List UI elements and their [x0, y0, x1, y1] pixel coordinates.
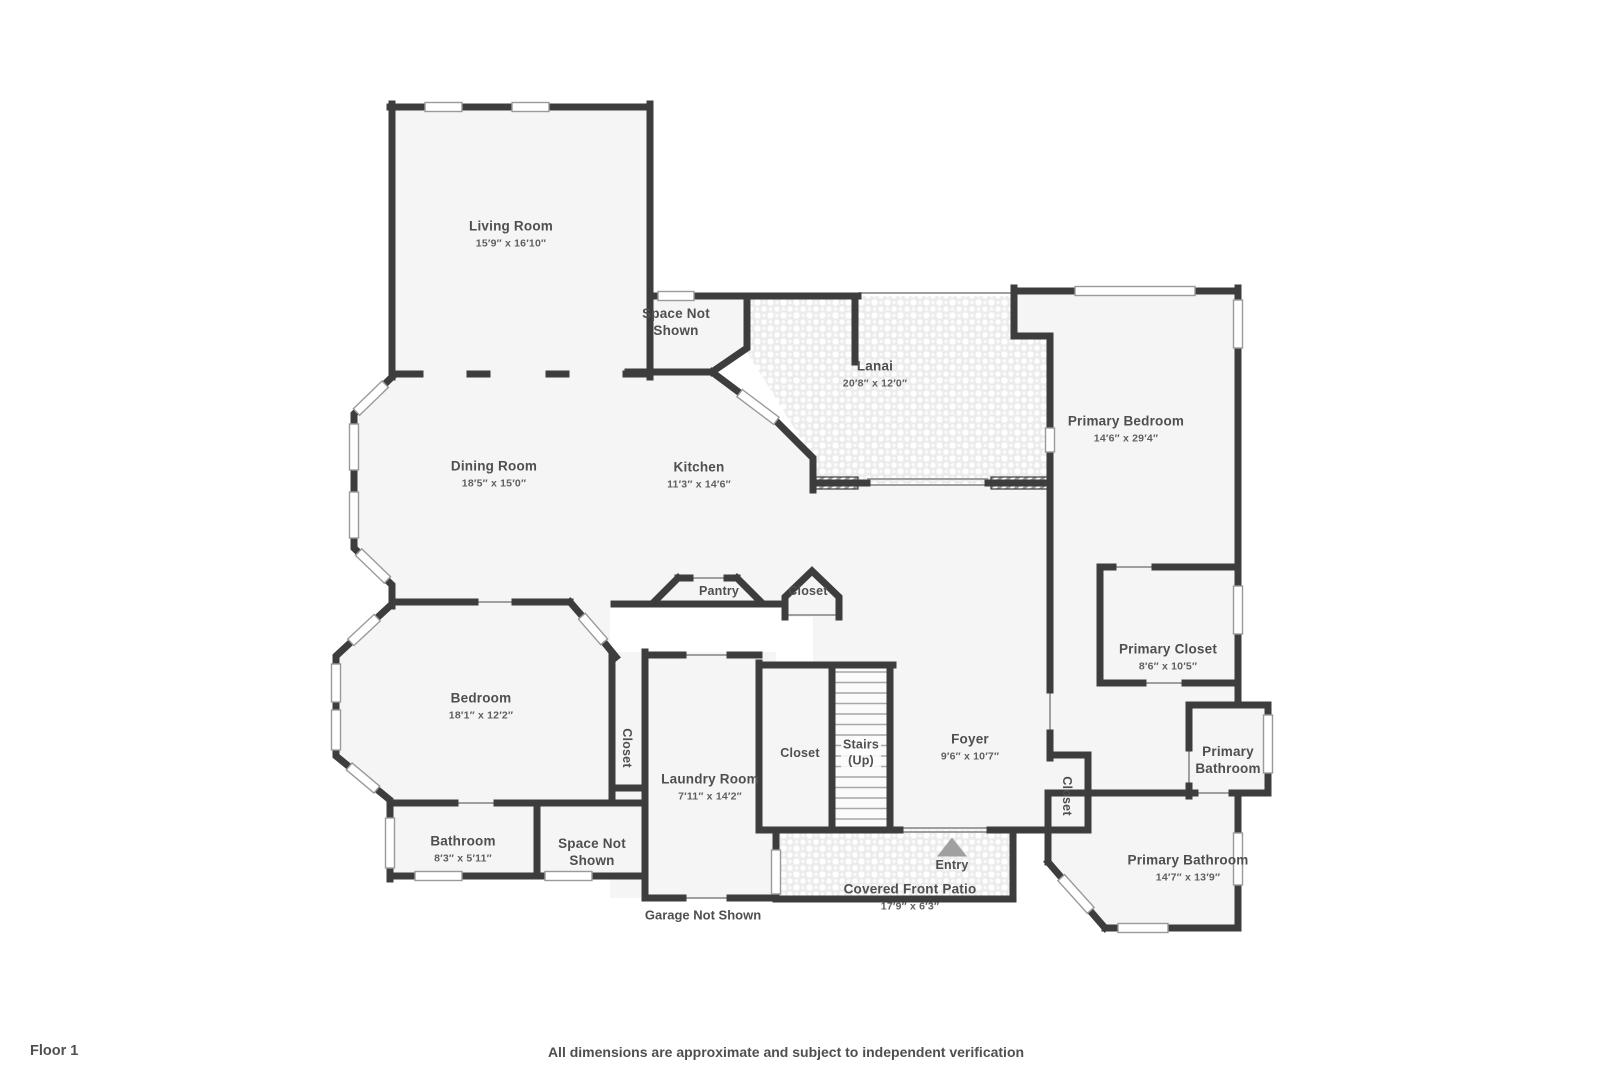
floor-title: Floor 1 — [30, 1043, 78, 1059]
floor-plan-drawing — [0, 0, 1620, 1080]
disclaimer-text: All dimensions are approximate and subje… — [548, 1044, 1024, 1060]
room-fill-layer — [336, 107, 1268, 928]
floor-plan-page: Living Room 15′9″ x 16′10″ Space Not Sho… — [0, 0, 1620, 1080]
garage-not-shown-label: Garage Not Shown — [645, 908, 761, 923]
entry-arrow-icon — [937, 838, 967, 857]
stairs-graphic — [834, 665, 888, 828]
